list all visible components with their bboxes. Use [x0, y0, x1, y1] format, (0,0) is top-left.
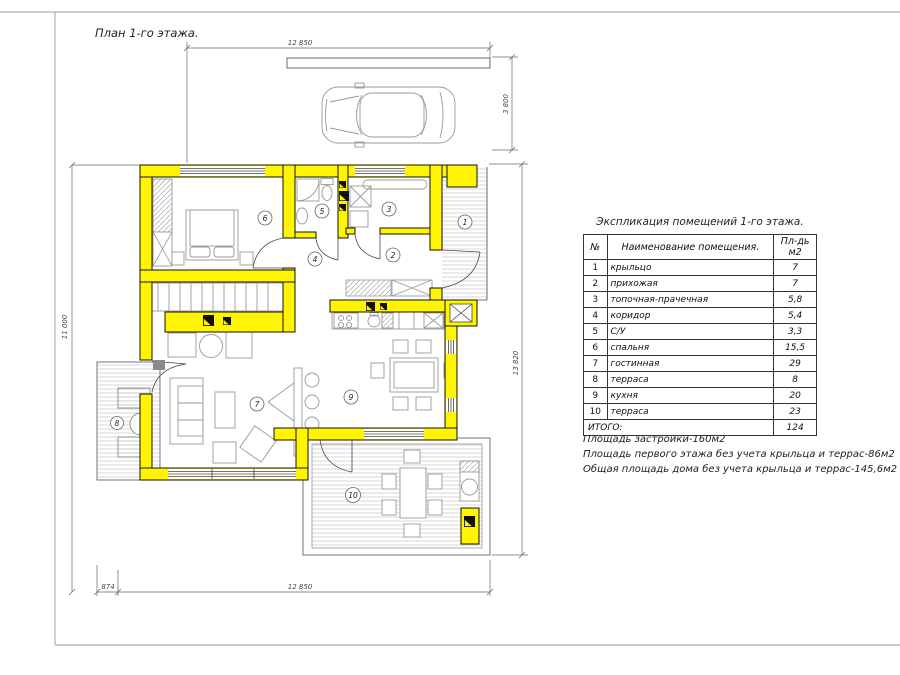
legend-title: Экспликация помещений 1-го этажа.: [583, 216, 817, 228]
dim-left-label: 11 000: [61, 314, 69, 339]
room-area-cell: 29: [774, 356, 817, 372]
room-bubble-7: 7: [250, 397, 264, 411]
room-area-cell: 20: [774, 388, 817, 404]
room-name-cell: коридор: [607, 308, 774, 324]
room-area-cell: 8: [774, 372, 817, 388]
svg-text:9: 9: [349, 393, 354, 402]
room-name-cell: терраса: [607, 404, 774, 420]
bedroom-furniture: [153, 179, 253, 266]
room-bubble-3: 3: [382, 202, 396, 216]
note-line: Площадь застройки-160м2: [583, 432, 897, 447]
svg-text:4: 4: [313, 255, 318, 264]
room-bubble-2: 2: [386, 248, 400, 262]
room-name-cell: кухня: [607, 388, 774, 404]
table-row: 4 коридор 5,4: [584, 308, 817, 324]
table-row: 5 С/У 3,3: [584, 324, 817, 340]
room-bubble-9: 9: [344, 390, 358, 404]
room-number-cell: 1: [584, 260, 608, 276]
explication-table: № Наименование помещения. Пл-дь м2 1 кры…: [583, 234, 817, 436]
room-area-cell: 7: [774, 276, 817, 292]
table-row: 2 прихожая 7: [584, 276, 817, 292]
room-name-cell: терраса: [607, 372, 774, 388]
car: [322, 83, 455, 147]
dim-top-label: 12 850: [288, 39, 313, 47]
table-row: 8 терраса 8: [584, 372, 817, 388]
svg-text:5: 5: [320, 207, 325, 216]
room-name-cell: топочная-прачечная: [607, 292, 774, 308]
room-number-cell: 2: [584, 276, 608, 292]
table-row: 10 терраса 23: [584, 404, 817, 420]
room-number-cell: 5: [584, 324, 608, 340]
room-number-cell: 8: [584, 372, 608, 388]
svg-text:1: 1: [463, 218, 468, 227]
table-body: 1 крыльцо 7 2 прихожая 7 3 топочная-прач…: [584, 260, 817, 420]
room-number-cell: 4: [584, 308, 608, 324]
room-area-cell: 3,3: [774, 324, 817, 340]
room-bubble-1: 1: [458, 215, 472, 229]
parking-curb: [287, 58, 490, 68]
room-legend: Экспликация помещений 1-го этажа. № Наим…: [583, 216, 817, 436]
dim-bottom-b-label: 12 850: [288, 583, 313, 591]
staircase: [152, 283, 283, 311]
table-row: 6 спальня 15,5: [584, 340, 817, 356]
room-area-cell: 5,4: [774, 308, 817, 324]
svg-text:2: 2: [391, 251, 396, 260]
room-name-cell: спальня: [607, 340, 774, 356]
page-title: План 1-го этажа.: [95, 26, 199, 40]
room-area-cell: 15,5: [774, 340, 817, 356]
room-number-cell: 6: [584, 340, 608, 356]
room-bubble-8: 8: [111, 417, 124, 430]
area-notes: Площадь застройки-160м2 Площадь первого …: [583, 432, 897, 477]
room-bubble-10: 10: [346, 488, 361, 503]
room-bubble-5: 5: [315, 204, 329, 218]
dimension-parking: 3 800: [492, 54, 518, 153]
svg-text:10: 10: [348, 491, 358, 500]
dim-right-label: 13 820: [512, 350, 520, 375]
room-name-cell: С/У: [607, 324, 774, 340]
dimension-top: 12 850: [184, 39, 493, 163]
svg-text:7: 7: [255, 400, 260, 409]
room-name-cell: гостинная: [607, 356, 774, 372]
room-area-cell: 23: [774, 404, 817, 420]
svg-text:8: 8: [115, 419, 120, 428]
room-number-cell: 9: [584, 388, 608, 404]
room-bubble-4: 4: [308, 252, 322, 266]
table-row: 7 гостинная 29: [584, 356, 817, 372]
room-name-cell: крыльцо: [607, 260, 774, 276]
table-header-row: № Наименование помещения. Пл-дь м2: [584, 235, 817, 260]
table-row: 9 кухня 20: [584, 388, 817, 404]
room-number-cell: 3: [584, 292, 608, 308]
bathroom-fixtures: [297, 179, 334, 225]
room-number-cell: 10: [584, 404, 608, 420]
svg-text:3: 3: [387, 205, 392, 214]
note-line: Площадь первого этажа без учета крыльца …: [583, 447, 897, 462]
dimension-right: 13 820: [489, 161, 528, 558]
room-bubble-6: 6: [258, 211, 272, 225]
room-number-cell: 7: [584, 356, 608, 372]
hall-wardrobe: [346, 280, 432, 296]
room-name-cell: прихожая: [607, 276, 774, 292]
dim-bottom-a-label: 874: [101, 583, 114, 591]
note-line: Общая площадь дома без учета крыльца и т…: [583, 462, 897, 477]
col-header-area: Пл-дь м2: [774, 235, 817, 260]
drawing-sheet: 12 850 3 800 13 820 11 000 874 12 850: [0, 0, 900, 675]
col-header-name: Наименование помещения.: [607, 235, 774, 260]
svg-text:6: 6: [263, 214, 268, 223]
table-row: 1 крыльцо 7: [584, 260, 817, 276]
dim-parking-label: 3 800: [502, 93, 510, 114]
table-row: 3 топочная-прачечная 5,8: [584, 292, 817, 308]
room-area-cell: 7: [774, 260, 817, 276]
col-header-number: №: [584, 235, 608, 260]
dimension-bottom: 874 12 850: [94, 560, 493, 596]
room-area-cell: 5,8: [774, 292, 817, 308]
